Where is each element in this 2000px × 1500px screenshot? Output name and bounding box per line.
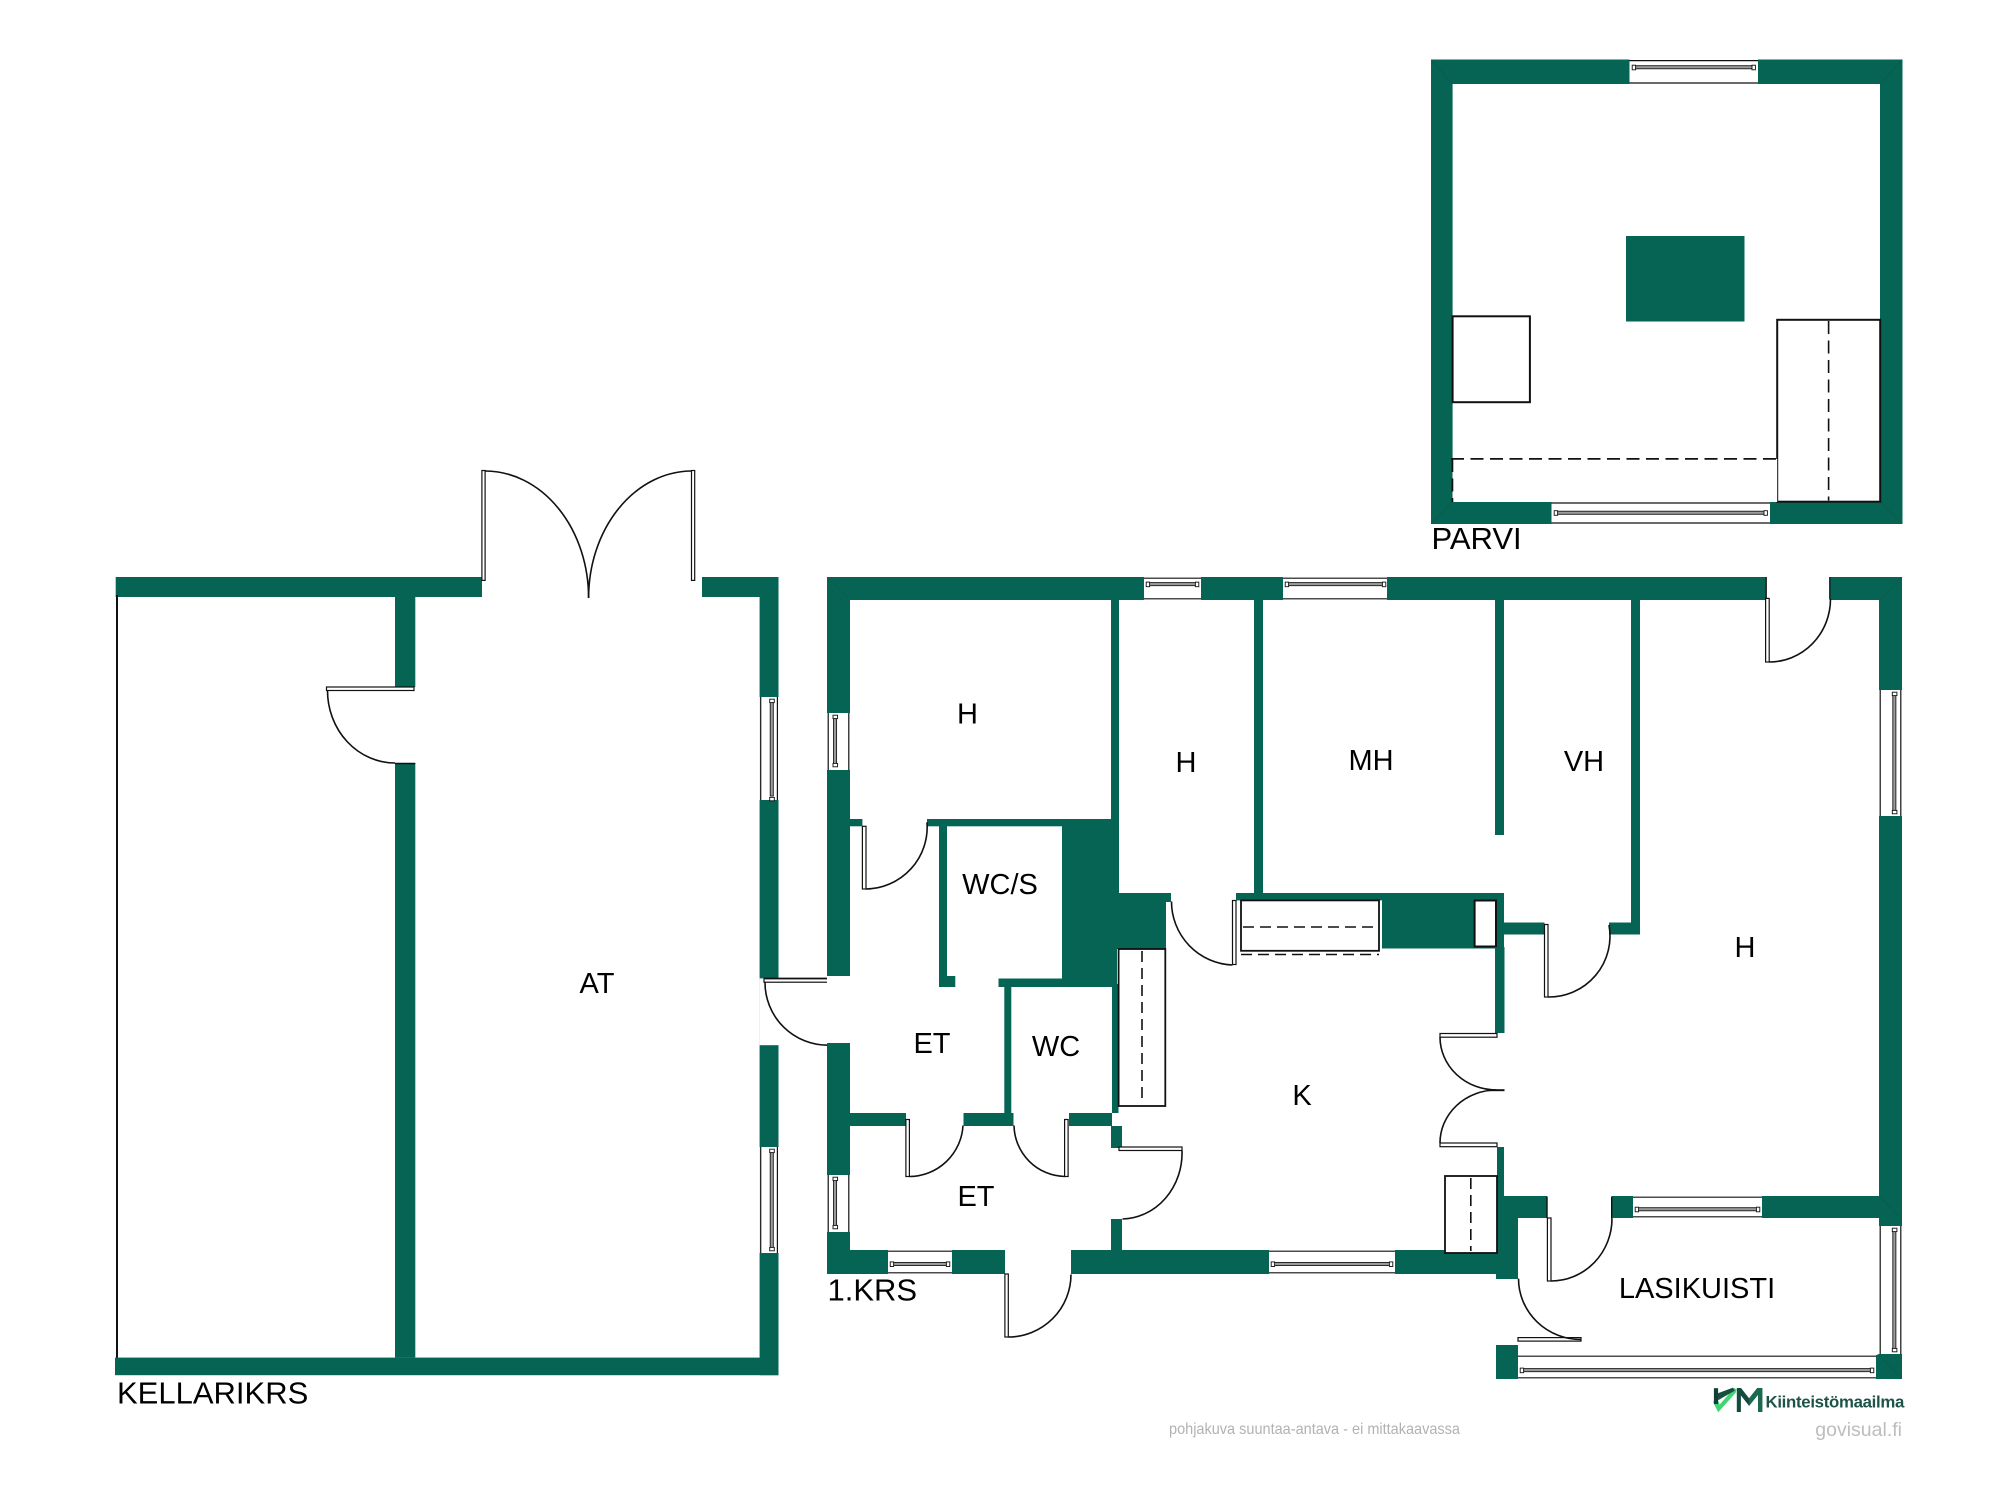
svg-text:H: H — [1176, 747, 1197, 779]
svg-text:KELLARIKRS: KELLARIKRS — [117, 1376, 308, 1411]
svg-text:pohjakuva suuntaa-antava - ei: pohjakuva suuntaa-antava - ei mittakaava… — [1169, 1421, 1460, 1438]
svg-text:LASIKUISTI: LASIKUISTI — [1619, 1273, 1775, 1305]
svg-text:PARVI: PARVI — [1432, 521, 1522, 556]
svg-text:WC: WC — [1032, 1031, 1080, 1063]
svg-text:WC/S: WC/S — [962, 869, 1038, 901]
svg-text:H: H — [1735, 932, 1756, 964]
svg-text:ET: ET — [957, 1181, 994, 1213]
svg-text:govisual.fi: govisual.fi — [1815, 1419, 1902, 1441]
svg-text:H: H — [957, 699, 978, 731]
svg-text:1.KRS: 1.KRS — [828, 1273, 918, 1308]
svg-text:ET: ET — [913, 1028, 950, 1060]
svg-text:AT: AT — [580, 968, 615, 1000]
svg-text:Kiinteistömaailma: Kiinteistömaailma — [1766, 1393, 1905, 1412]
svg-text:K: K — [1292, 1080, 1312, 1112]
svg-text:MH: MH — [1348, 745, 1393, 777]
svg-text:VH: VH — [1564, 746, 1604, 778]
